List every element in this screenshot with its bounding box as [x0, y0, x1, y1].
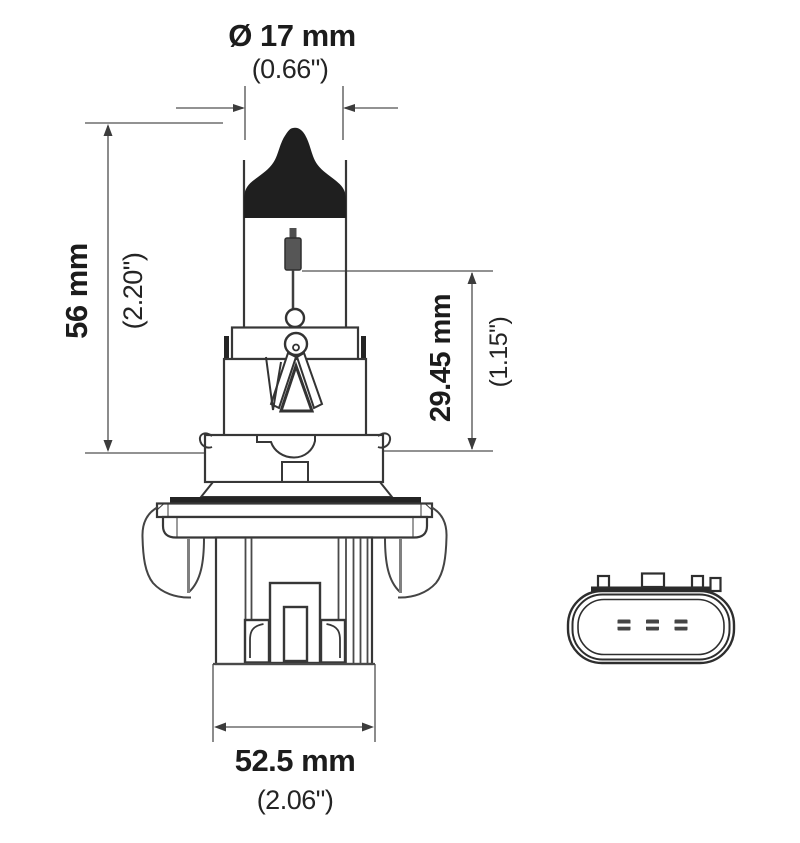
technical-drawing-canvas: Ø 17 mm (0.66") 56 mm (2.20") 29.45 mm (…: [0, 0, 800, 843]
width-imperial-label: (2.06"): [145, 782, 445, 818]
dimension-diameter-lines: [176, 86, 398, 140]
dimension-width-lines: [213, 664, 375, 742]
width-metric-label: 52.5 mm: [145, 740, 445, 780]
lcl-metric-label: 29.45 mm: [421, 258, 461, 458]
height-imperial-label: (2.20"): [115, 211, 151, 371]
dimension-height-lines: [85, 123, 223, 453]
diameter-metric-label: Ø 17 mm: [142, 15, 442, 55]
base-body: [213, 538, 375, 665]
connector-pins: [618, 620, 688, 631]
diameter-imperial-label: (0.66"): [140, 51, 440, 87]
lcl-imperial-label: (1.15"): [482, 277, 516, 427]
filament: [285, 228, 304, 327]
bulb-black-tip: [245, 129, 345, 217]
bulb-diagram-linework: [0, 0, 800, 843]
base-flange: [200, 433, 392, 497]
height-metric-label: 56 mm: [56, 191, 96, 391]
base-disc: [157, 497, 432, 538]
connector-face: [568, 574, 734, 664]
